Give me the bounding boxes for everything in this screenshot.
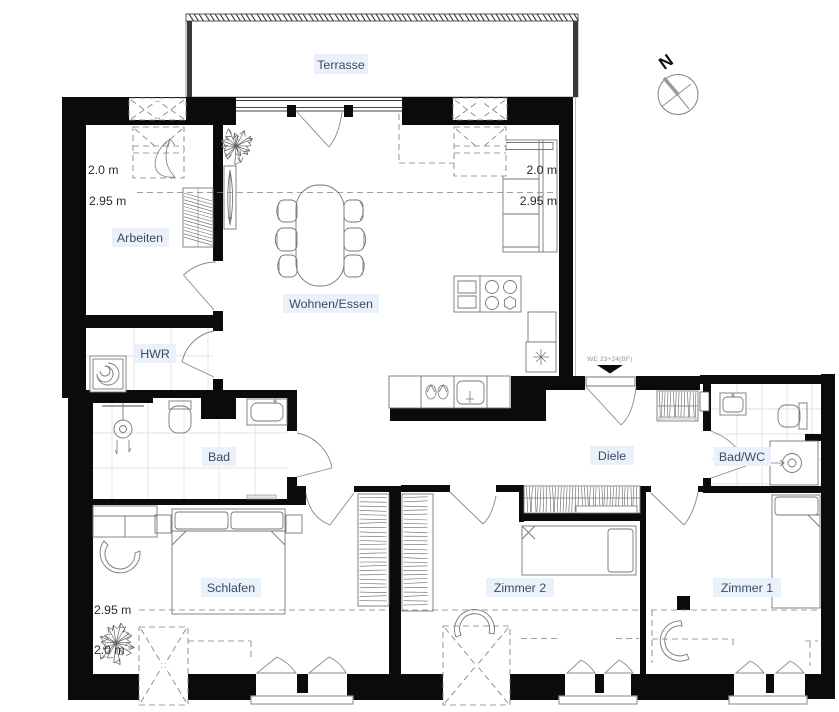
svg-text:Arbeiten: Arbeiten <box>117 231 163 245</box>
svg-text:Bad: Bad <box>208 450 230 464</box>
svg-text:2.95 m: 2.95 m <box>520 194 557 208</box>
svg-text:Zimmer 2: Zimmer 2 <box>494 581 546 595</box>
svg-text:HWR: HWR <box>140 347 170 361</box>
svg-text:2.0 m: 2.0 m <box>88 163 118 177</box>
svg-text:Wohnen/Essen: Wohnen/Essen <box>289 297 373 311</box>
svg-text:Schlafen: Schlafen <box>207 581 255 595</box>
svg-text:Zimmer 1: Zimmer 1 <box>721 581 773 595</box>
svg-text:2.0 m: 2.0 m <box>94 643 124 657</box>
svg-text:2.95 m: 2.95 m <box>89 194 126 208</box>
svg-text:2.95 m: 2.95 m <box>94 603 131 617</box>
svg-text:Terrasse: Terrasse <box>317 58 365 72</box>
svg-text:Diele: Diele <box>598 449 626 463</box>
svg-text:WE 23+24(BF): WE 23+24(BF) <box>587 356 632 363</box>
svg-text:2.0 m: 2.0 m <box>527 163 557 177</box>
svg-text:Bad/WC: Bad/WC <box>719 450 765 464</box>
